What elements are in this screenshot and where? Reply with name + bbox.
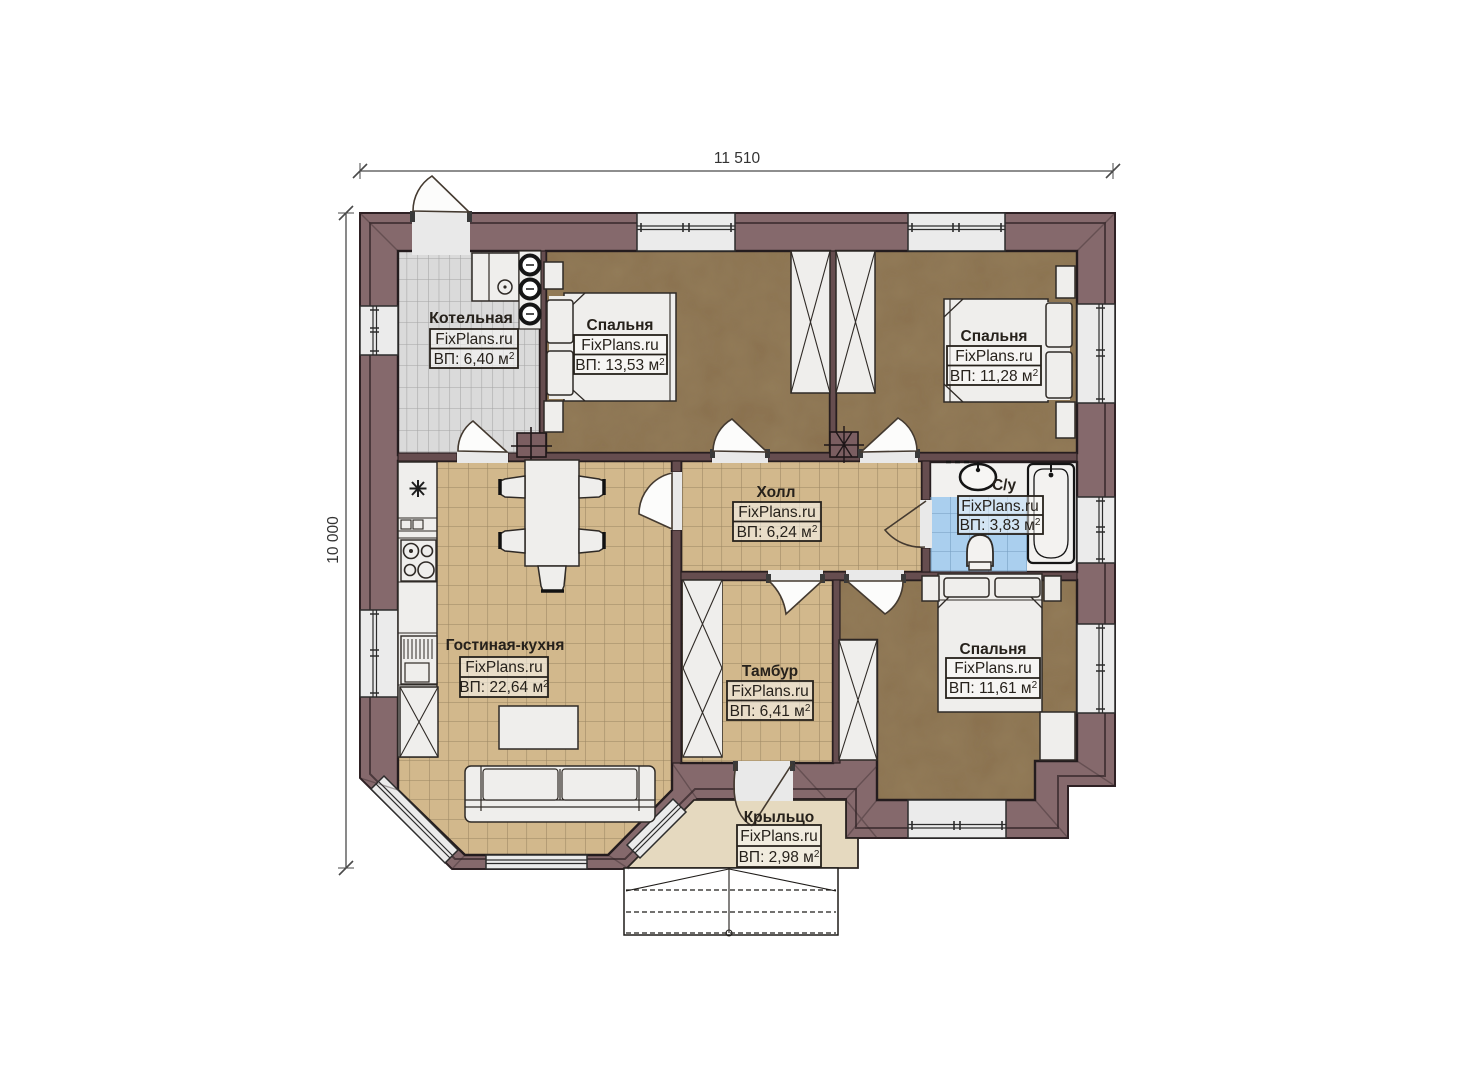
svg-text:10 000: 10 000 (325, 516, 342, 564)
svg-text:FixPlans.ru: FixPlans.ru (435, 331, 513, 348)
svg-text:ВП: 6,41 м2: ВП: 6,41 м2 (730, 703, 811, 720)
svg-text:Спальня: Спальня (961, 328, 1028, 345)
svg-text:FixPlans.ru: FixPlans.ru (954, 660, 1032, 677)
svg-text:FixPlans.ru: FixPlans.ru (465, 659, 543, 676)
svg-text:ВП: 2,98 м2: ВП: 2,98 м2 (739, 849, 820, 866)
svg-text:FixPlans.ru: FixPlans.ru (738, 504, 816, 521)
svg-text:Холл: Холл (757, 484, 796, 501)
svg-text:ВП: 3,83 м2: ВП: 3,83 м2 (960, 517, 1041, 534)
svg-text:Котельная: Котельная (429, 310, 513, 327)
svg-text:ВП: 6,40 м2: ВП: 6,40 м2 (434, 351, 515, 368)
svg-text:ВП: 11,28 м2: ВП: 11,28 м2 (950, 368, 1039, 385)
svg-text:FixPlans.ru: FixPlans.ru (731, 683, 809, 700)
svg-text:FixPlans.ru: FixPlans.ru (961, 498, 1039, 515)
svg-text:Спальня: Спальня (960, 641, 1027, 658)
svg-text:Крыльцо: Крыльцо (744, 809, 815, 826)
svg-text:Спальня: Спальня (587, 317, 654, 334)
svg-text:ВП: 6,24 м2: ВП: 6,24 м2 (737, 524, 818, 541)
svg-text:ВП: 13,53 м2: ВП: 13,53 м2 (575, 357, 665, 374)
svg-text:11 510: 11 510 (714, 150, 761, 167)
svg-text:Тамбур: Тамбур (742, 663, 798, 680)
svg-text:FixPlans.ru: FixPlans.ru (740, 828, 818, 845)
svg-text:Гостиная-кухня: Гостиная-кухня (446, 637, 565, 654)
svg-text:FixPlans.ru: FixPlans.ru (955, 348, 1033, 365)
svg-text:ВП: 22,64 м2: ВП: 22,64 м2 (459, 679, 549, 696)
svg-text:С/у: С/у (992, 477, 1017, 494)
svg-text:ВП: 11,61 м2: ВП: 11,61 м2 (949, 680, 1038, 697)
svg-text:FixPlans.ru: FixPlans.ru (581, 337, 659, 354)
